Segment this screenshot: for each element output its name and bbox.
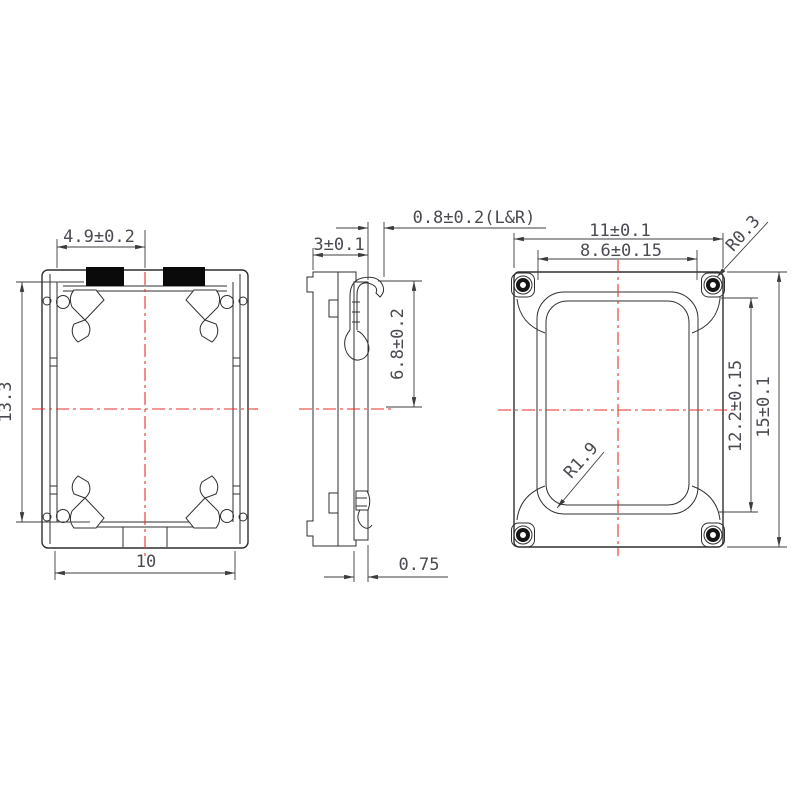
dim-back-hole-span: 12.2±0.15 [726,360,746,452]
back-view [498,260,734,556]
dim-side-terminal-protrusion: 0.8±0.2(L&R) [413,208,536,228]
dim-side-terminal-height: 6.8±0.2 [388,308,408,380]
dim-side-bottom-width: 0.75 [399,555,440,575]
technical-drawing-page: 4.9±0.2 13.3 10 3±0.1 0.8±0.2(L&R) 6.8±0… [0,0,800,800]
speaker-technical-drawing: 4.9±0.2 13.3 10 3±0.1 0.8±0.2(L&R) 6.8±0… [0,0,800,800]
dim-side-thickness: 3±0.1 [313,235,364,255]
dim-back-opening-width: 8.6±0.15 [580,241,662,261]
dim-front-width: 10 [136,552,156,572]
dim-front-height: 13.3 [0,382,16,423]
dim-front-pad-offset: 4.9±0.2 [63,227,135,247]
dim-back-height: 15±0.1 [754,376,774,437]
solder-pad-left [86,267,124,286]
solder-pad-right [163,267,205,286]
side-view [299,272,393,546]
dim-back-width: 11±0.1 [589,221,650,241]
front-view [32,267,258,558]
